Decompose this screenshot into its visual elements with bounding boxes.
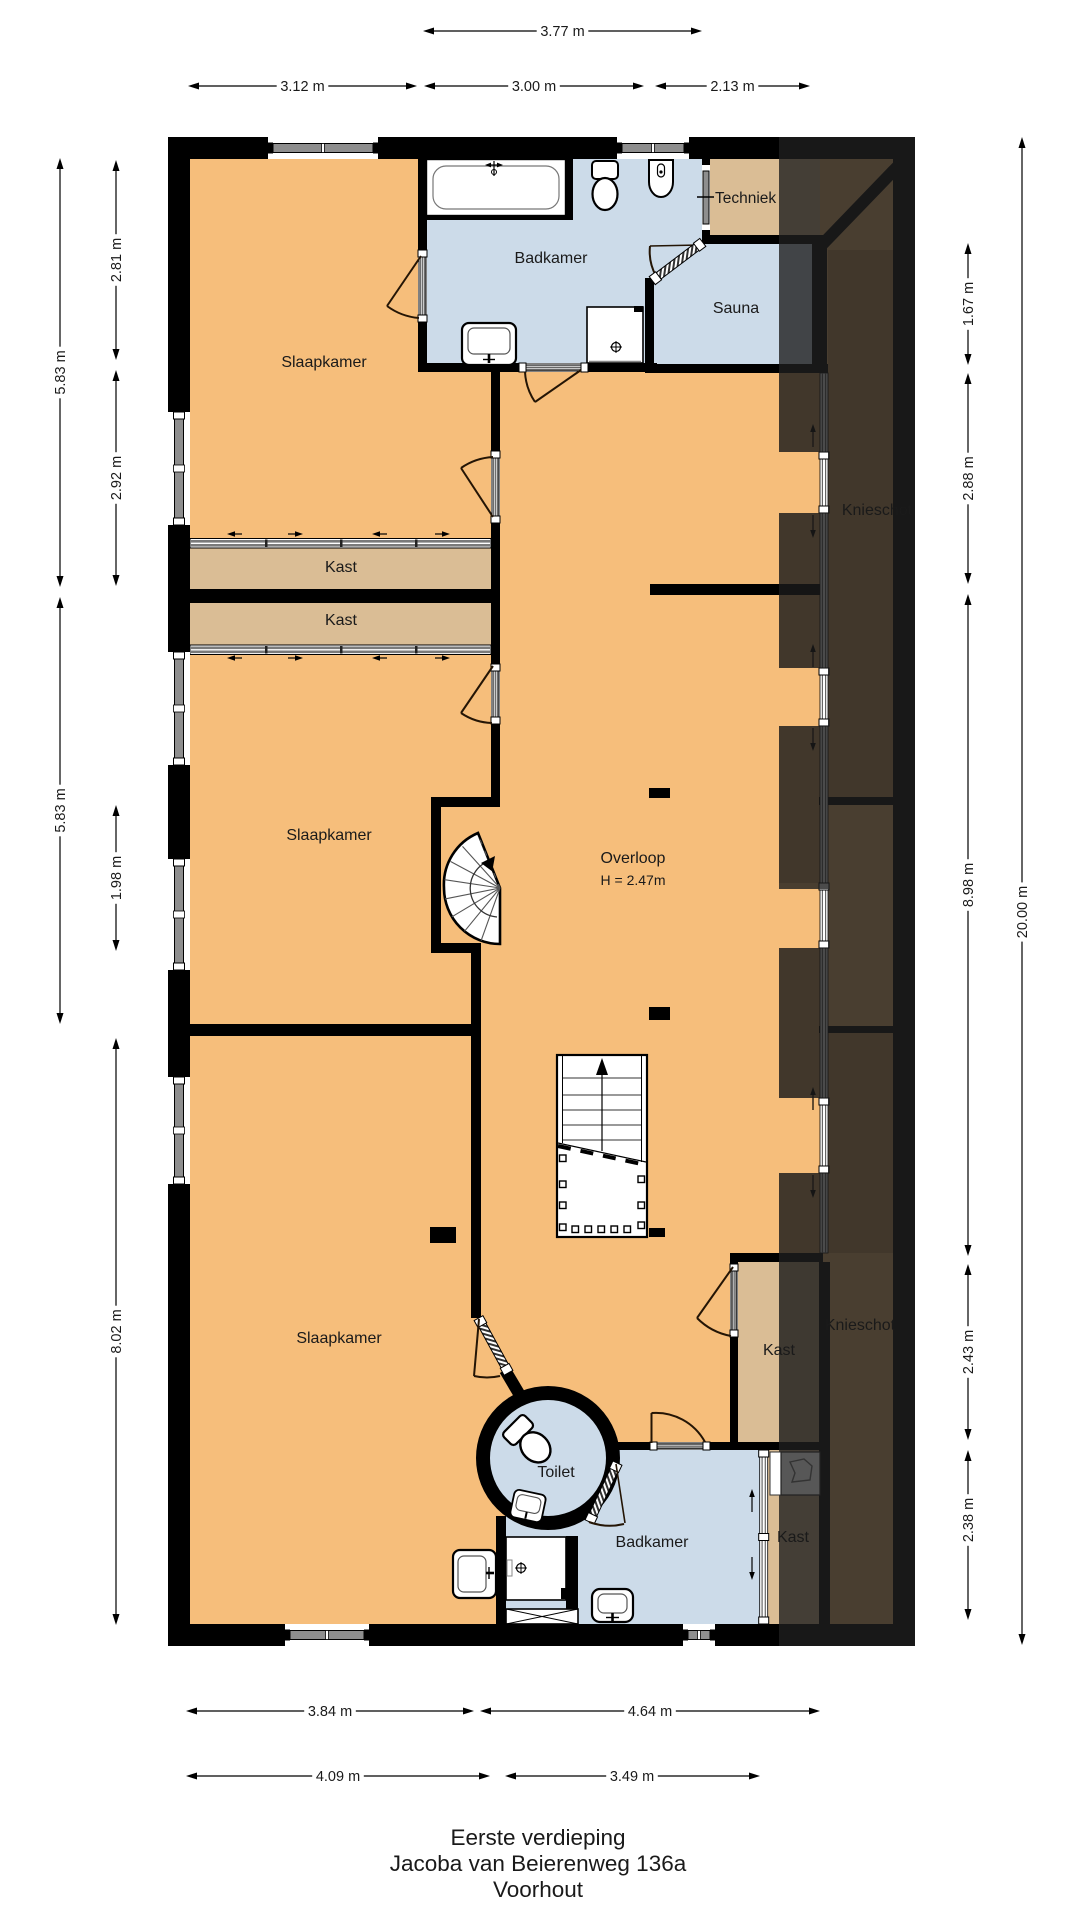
- svg-text:Overloop: Overloop: [601, 850, 666, 867]
- svg-text:Slaapkamer: Slaapkamer: [296, 1330, 382, 1347]
- svg-text:Kast: Kast: [763, 1342, 796, 1359]
- svg-text:8.98 m: 8.98 m: [961, 863, 977, 907]
- svg-text:Jacoba van Beierenweg 136a: Jacoba van Beierenweg 136a: [390, 1851, 687, 1876]
- svg-text:3.77 m: 3.77 m: [540, 24, 584, 40]
- svg-text:3.49 m: 3.49 m: [610, 1769, 654, 1785]
- svg-text:2.38 m: 2.38 m: [961, 1498, 977, 1542]
- svg-text:4.64 m: 4.64 m: [628, 1704, 672, 1720]
- svg-text:Slaapkamer: Slaapkamer: [281, 354, 367, 371]
- svg-text:2.81 m: 2.81 m: [109, 238, 125, 282]
- svg-text:3.84 m: 3.84 m: [308, 1704, 352, 1720]
- svg-text:Techniek: Techniek: [715, 190, 776, 207]
- svg-text:4.09 m: 4.09 m: [316, 1769, 360, 1785]
- svg-text:2.92 m: 2.92 m: [109, 456, 125, 500]
- svg-text:3.00 m: 3.00 m: [512, 79, 556, 95]
- svg-text:Knieschot: Knieschot: [825, 1317, 896, 1334]
- svg-text:8.02 m: 8.02 m: [109, 1309, 125, 1353]
- svg-text:Badkamer: Badkamer: [616, 1534, 690, 1551]
- svg-text:H = 2.47m: H = 2.47m: [601, 872, 666, 888]
- svg-text:20.00 m: 20.00 m: [1015, 886, 1031, 938]
- svg-text:Kast: Kast: [777, 1529, 810, 1546]
- svg-text:Voorhout: Voorhout: [493, 1877, 584, 1902]
- svg-text:Knieschot: Knieschot: [842, 502, 913, 519]
- svg-text:Kast: Kast: [325, 612, 358, 629]
- svg-text:Eerste verdieping: Eerste verdieping: [450, 1825, 625, 1850]
- svg-text:1.67 m: 1.67 m: [961, 282, 977, 326]
- svg-text:Slaapkamer: Slaapkamer: [286, 827, 372, 844]
- svg-text:3.12 m: 3.12 m: [280, 79, 324, 95]
- svg-text:5.83 m: 5.83 m: [53, 788, 69, 832]
- svg-text:Sauna: Sauna: [713, 300, 759, 317]
- svg-text:Toilet: Toilet: [537, 1464, 575, 1481]
- svg-text:2.88 m: 2.88 m: [961, 456, 977, 500]
- svg-text:1.98 m: 1.98 m: [109, 856, 125, 900]
- svg-text:2.13 m: 2.13 m: [710, 79, 754, 95]
- svg-text:2.43 m: 2.43 m: [961, 1330, 977, 1374]
- svg-text:Kast: Kast: [325, 559, 358, 576]
- svg-text:Badkamer: Badkamer: [515, 250, 589, 267]
- svg-text:5.83 m: 5.83 m: [53, 350, 69, 394]
